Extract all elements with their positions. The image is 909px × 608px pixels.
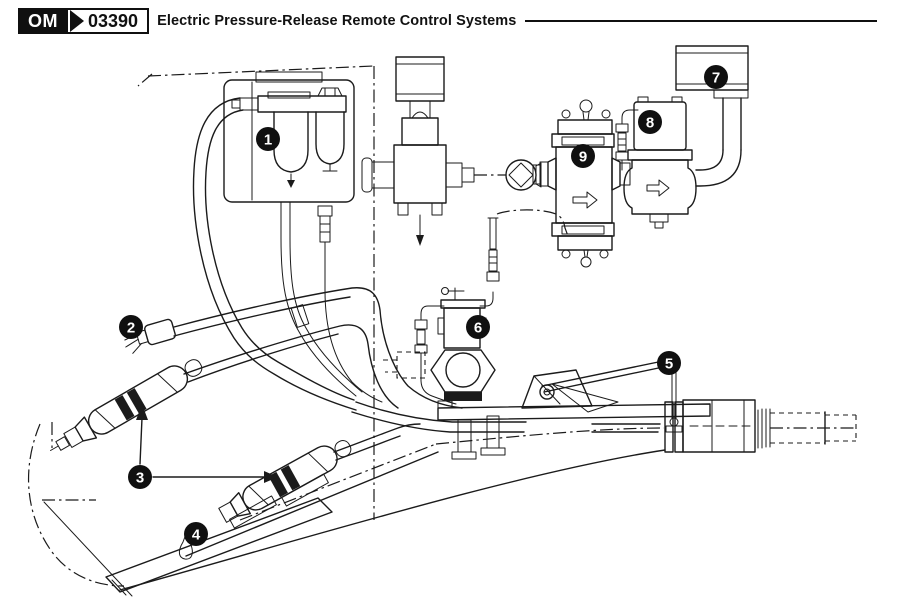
mounting-rail: [438, 401, 710, 459]
page-title: Electric Pressure-Release Remote Control…: [157, 13, 516, 29]
manual-page: OM 03390 Electric Pressure-Release Remot…: [0, 0, 909, 608]
section-code: 03390: [88, 11, 138, 32]
callout-7-number: 7: [712, 70, 720, 87]
release-lever: [522, 360, 682, 432]
page-header: OM 03390 Electric Pressure-Release Remot…: [18, 7, 909, 35]
flow-arrow-icon: [573, 192, 597, 208]
handle-mount-tube: [106, 474, 332, 595]
header-rule: [525, 20, 877, 23]
callout-4-number: 4: [192, 527, 201, 544]
diagram-canvas: 1 2 3 4 5 6 7 8 9: [0, 0, 909, 608]
callout-9-number: 9: [579, 149, 587, 166]
cylinder-assembly: [665, 400, 856, 452]
filter-lubricator-panel: [224, 72, 354, 202]
boom: [120, 450, 665, 590]
flow-arrow-icon: [647, 180, 669, 196]
callouts: 1 2 3 4 5 6 7 8 9: [119, 65, 728, 546]
om-tag: OM: [18, 8, 66, 34]
callout-5-number: 5: [665, 356, 673, 373]
pressure-regulator: [362, 57, 506, 246]
release-valve: [533, 100, 630, 267]
electric-plug: [122, 288, 462, 408]
callout-2-number: 2: [127, 320, 135, 337]
callout-6-number: 6: [474, 320, 482, 337]
callout-8-number: 8: [646, 115, 654, 132]
control-valve: [379, 218, 499, 404]
section-code-box: 03390: [66, 8, 149, 34]
chevron-icon: [70, 10, 84, 32]
switch-handle-b: [216, 424, 420, 527]
callout-1-number: 1: [264, 132, 272, 149]
callout-3-arrows: [136, 404, 278, 483]
callout-3-number: 3: [136, 470, 144, 487]
